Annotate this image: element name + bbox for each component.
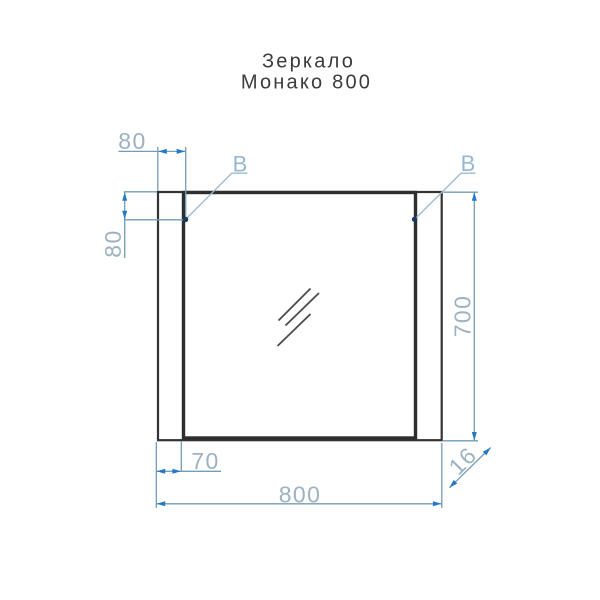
svg-text:B: B [461,151,476,176]
svg-text:Зеркало: Зеркало [262,51,355,73]
svg-text:B: B [233,152,248,177]
svg-text:700: 700 [450,295,476,338]
svg-text:70: 70 [191,448,219,474]
svg-text:80: 80 [118,128,146,154]
svg-text:80: 80 [100,229,126,257]
svg-text:Монако 800: Монако 800 [241,72,372,94]
svg-text:800: 800 [279,482,322,508]
